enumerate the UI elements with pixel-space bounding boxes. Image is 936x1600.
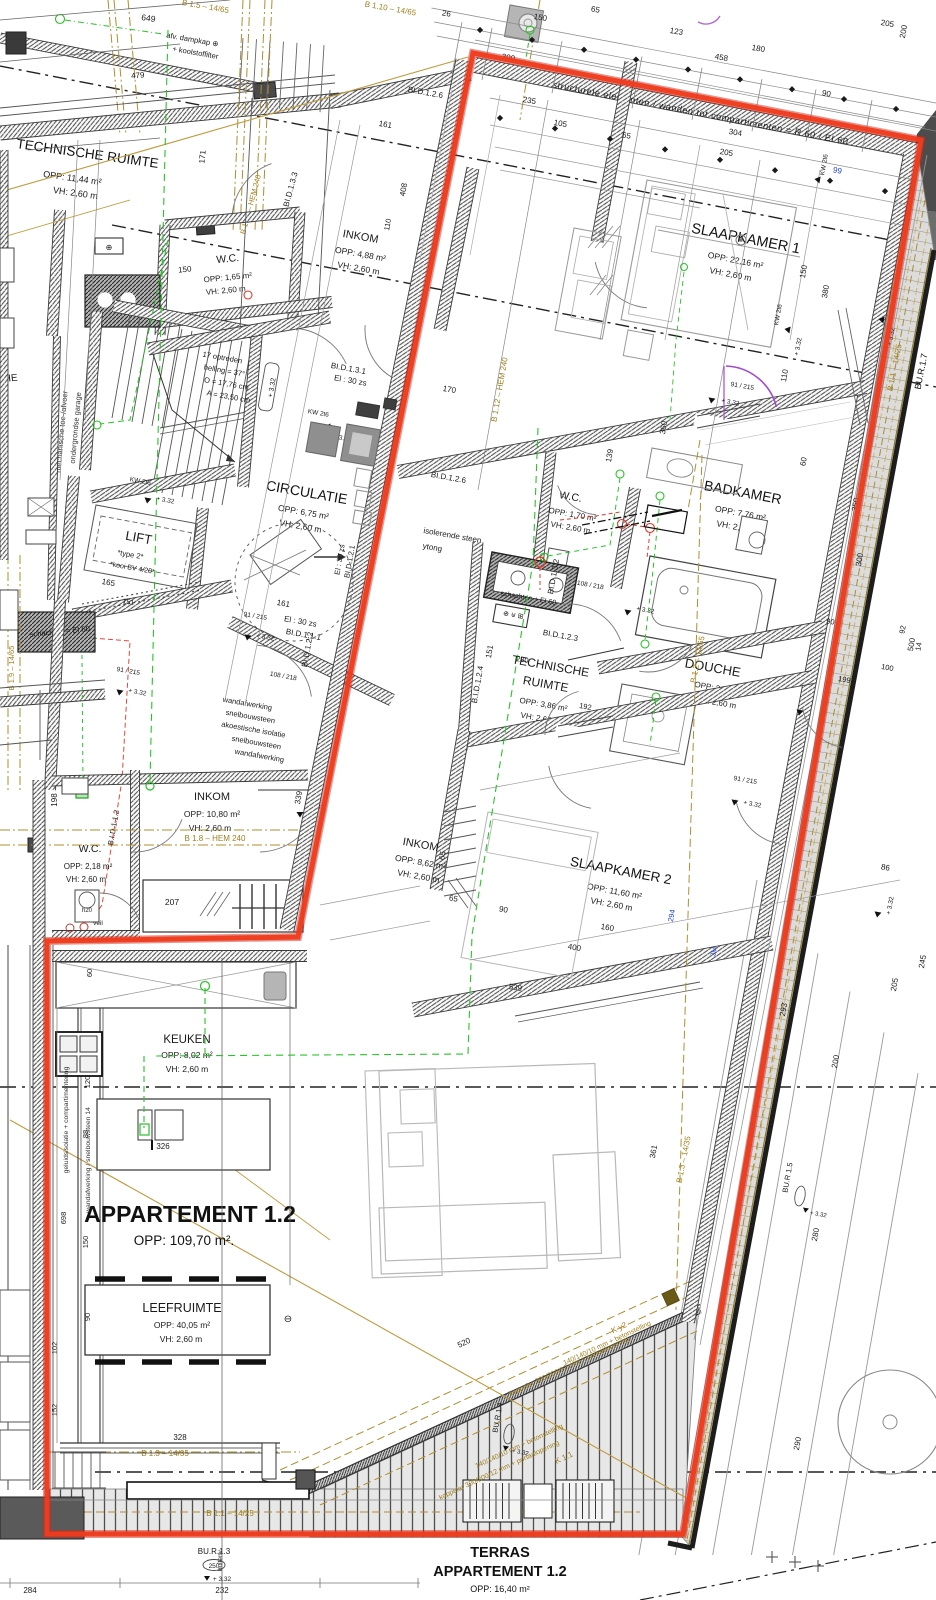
svg-text:LEEFRUIMTE: LEEFRUIMTE [142, 1301, 221, 1315]
svg-text:120: 120 [83, 1076, 92, 1089]
svg-text:92: 92 [897, 625, 907, 635]
svg-text:OPP: 10,80 m²: OPP: 10,80 m² [184, 809, 240, 819]
svg-text:VH: 2,60 m: VH: 2,60 m [66, 875, 106, 884]
svg-text:B 1.8 – HEM 240: B 1.8 – HEM 240 [185, 834, 246, 843]
svg-text:152: 152 [50, 1404, 59, 1417]
svg-text:OPP: 16,40 m²: OPP: 16,40 m² [470, 1584, 530, 1594]
svg-text:APPARTEMENT 1.2: APPARTEMENT 1.2 [433, 1564, 566, 1580]
svg-text:KEUKEN: KEUKEN [163, 1034, 210, 1046]
svg-text:150: 150 [81, 1236, 90, 1249]
svg-text:60: 60 [85, 969, 94, 977]
svg-text:VH: 2,60 m: VH: 2,60 m [189, 823, 232, 833]
svg-text:W.C.: W.C. [216, 252, 240, 266]
svg-text:h20: h20 [82, 908, 93, 914]
svg-text:OPP: 109,70 m².: OPP: 109,70 m². [134, 1233, 235, 1248]
svg-text:150: 150 [178, 264, 193, 274]
svg-text:B 1.3 – 14/35: B 1.3 – 14/35 [141, 1449, 189, 1458]
svg-text:veil: veil [93, 920, 103, 927]
svg-text:102: 102 [50, 1342, 59, 1355]
svg-text:90: 90 [826, 616, 836, 626]
svg-text:649: 649 [141, 12, 157, 24]
svg-text:284: 284 [23, 1586, 37, 1595]
svg-text:TERRAS: TERRAS [470, 1545, 530, 1561]
svg-text:14: 14 [913, 642, 923, 652]
svg-text:wandafwerking / snelbouwsteen: wandafwerking / snelbouwsteen 14 [85, 1107, 92, 1214]
svg-text:OPP: 40,05 m²: OPP: 40,05 m² [154, 1320, 210, 1330]
svg-text:326: 326 [156, 1142, 170, 1151]
svg-text:198: 198 [50, 793, 59, 807]
svg-text:geluidsisolatie + compartiment: geluidsisolatie + compartimentering [63, 1066, 70, 1173]
svg-text:⊕: ⊕ [106, 243, 113, 252]
svg-text:479: 479 [131, 70, 146, 80]
svg-text:B 1.1 – 14/25: B 1.1 – 14/25 [206, 1509, 254, 1518]
svg-text:90: 90 [83, 1313, 92, 1321]
svg-text:⊖: ⊖ [284, 1314, 292, 1325]
svg-text:207: 207 [165, 897, 179, 907]
svg-text:VH: 2,60 m: VH: 2,60 m [160, 1334, 203, 1344]
svg-text:OPP: 2,18 m²: OPP: 2,18 m² [64, 862, 113, 871]
svg-text:698: 698 [59, 1212, 68, 1225]
svg-text:328: 328 [173, 1433, 187, 1442]
svg-text:171: 171 [197, 149, 207, 164]
svg-text:INKOM: INKOM [194, 791, 230, 803]
svg-text:VH: 2,60 m: VH: 2,60 m [166, 1064, 209, 1074]
svg-text:BU.R.1.3: BU.R.1.3 [198, 1547, 231, 1556]
svg-text:buitenv.: buitenv. [217, 1549, 224, 1571]
svg-text:APPARTEMENT 1.2: APPARTEMENT 1.2 [84, 1201, 296, 1227]
